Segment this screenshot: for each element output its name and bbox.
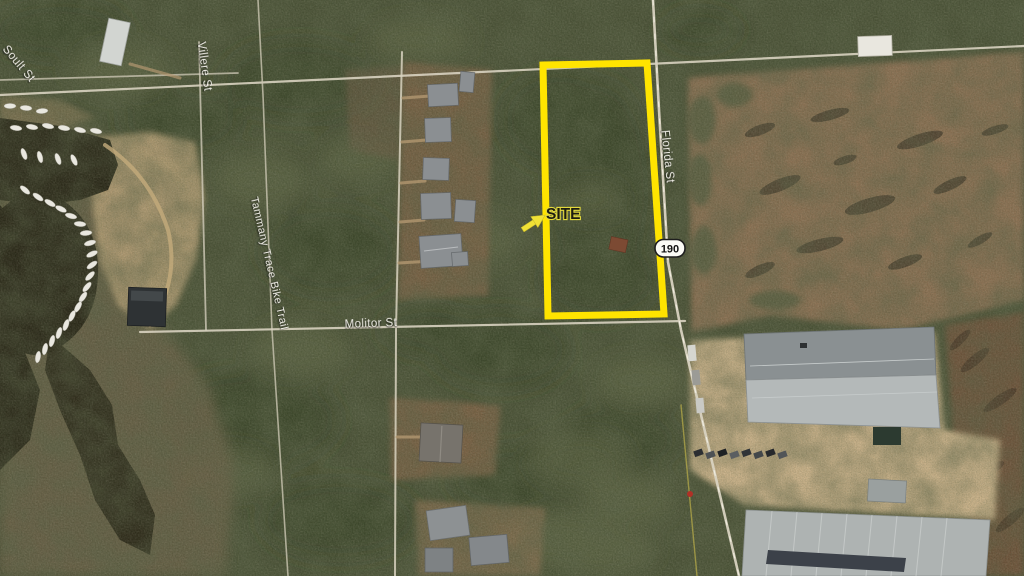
site-label: SITE — [546, 206, 580, 223]
small-roof-mid — [867, 479, 906, 503]
highway-190-label: 190 — [661, 243, 679, 255]
aerial-site-map: SITE 190 Soult St Villere St Tammany Tra… — [0, 0, 1024, 576]
warehouse-lower — [742, 510, 990, 576]
aerial-photo-canvas: SITE 190 Soult St Villere St Tammany Tra… — [0, 0, 1024, 576]
marina-building — [127, 287, 166, 326]
building-topright-white — [858, 35, 893, 56]
street-label-molitor: Molitor St — [344, 317, 397, 331]
highway-190-shield: 190 — [655, 240, 685, 258]
